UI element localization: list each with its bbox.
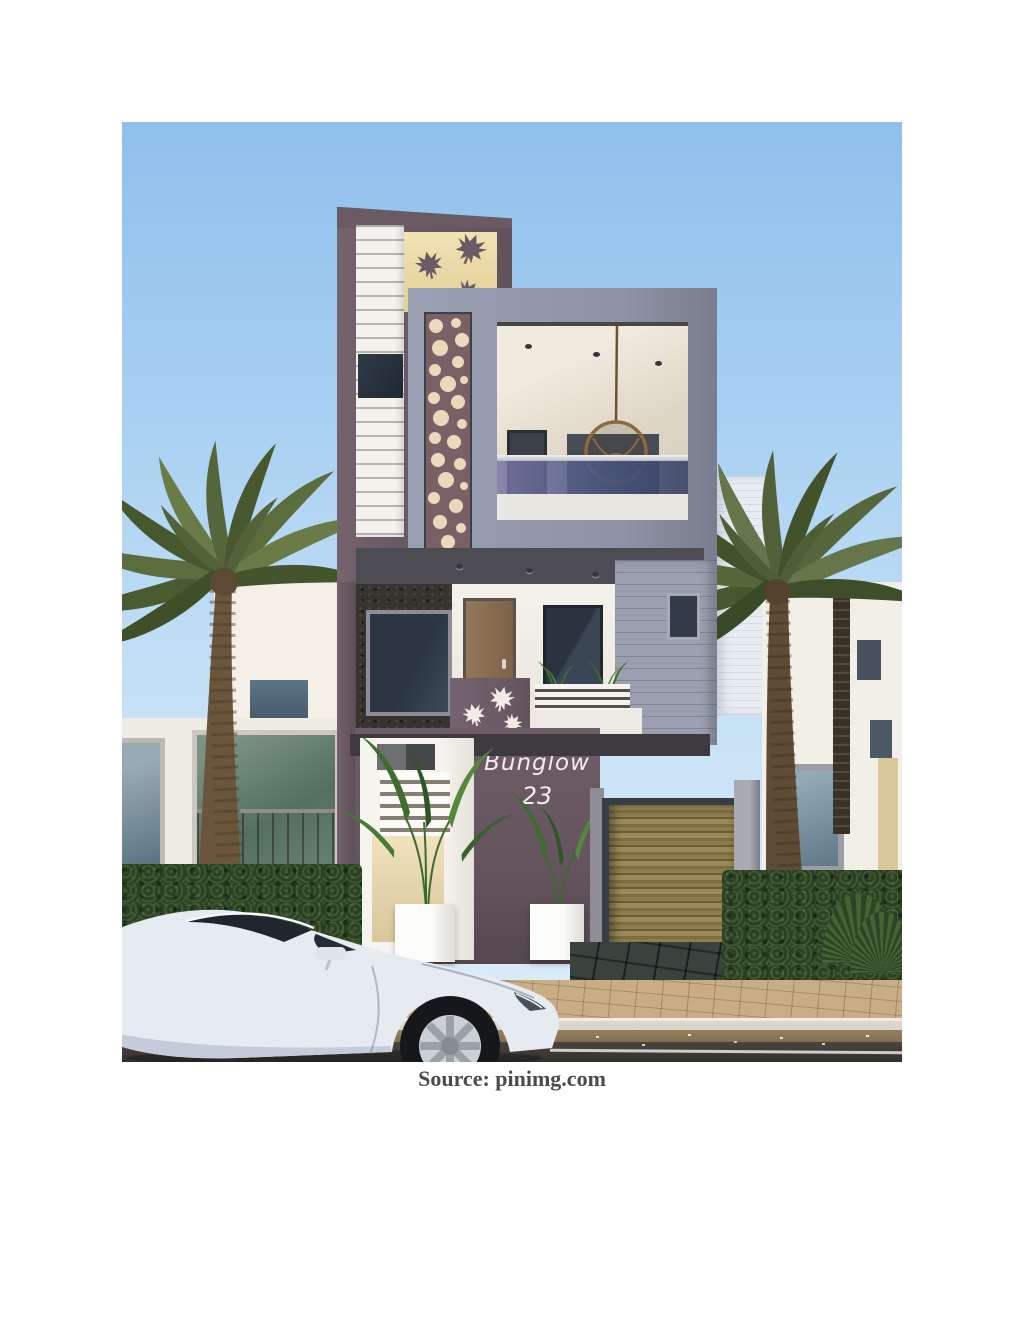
balcony-opening <box>497 322 688 520</box>
maple-leaf-decals-white <box>450 678 530 732</box>
ground-floor-window <box>366 610 452 716</box>
soffit-downlight <box>526 568 533 573</box>
small-window <box>667 593 700 640</box>
bungalow-render-image: Bunglow 23 <box>122 122 902 1062</box>
soffit-downlight <box>456 564 463 569</box>
ceiling-downlight <box>655 361 662 366</box>
ceiling-downlight <box>525 344 532 349</box>
terrace-railing-slats <box>535 684 630 710</box>
tower-window <box>358 354 403 398</box>
sign-line2: 23 <box>474 782 600 810</box>
image-source-caption: Source: pinimg.com <box>0 1066 1024 1092</box>
potted-plant-left <box>374 762 478 912</box>
balcony-parapet <box>497 494 688 520</box>
document-page: Bunglow 23 <box>0 0 1024 1325</box>
soffit-downlight <box>592 572 599 577</box>
white-sports-car <box>122 894 564 1062</box>
stone-feature-wall <box>356 584 452 736</box>
lattice-screen <box>424 312 472 552</box>
door-handle <box>502 659 506 669</box>
balcony-railing-handrail <box>497 455 688 461</box>
house-name-sign: Bunglow 23 <box>474 750 600 810</box>
mauve-planter-box <box>450 678 530 732</box>
upper-floor-block <box>408 288 717 560</box>
balcony-glass-railing <box>497 460 688 494</box>
